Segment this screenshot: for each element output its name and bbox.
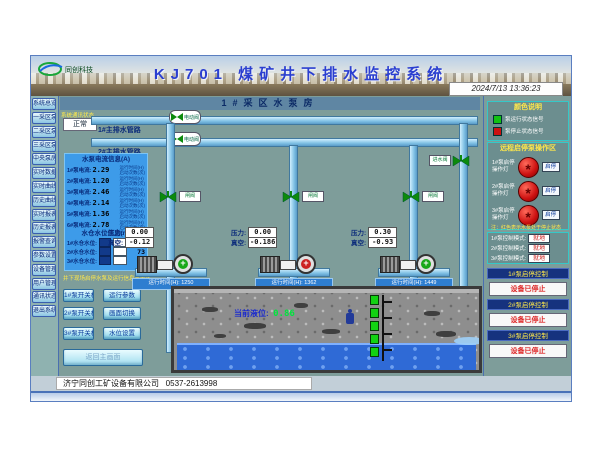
pump3-status-lamp[interactable]: * bbox=[518, 205, 539, 226]
motor-valve-1-label: 电动阀 bbox=[184, 114, 199, 121]
mode-box: 1#泵控制模式:就地 2#泵控制模式:就地 3#泵控制模式:就地 bbox=[487, 232, 569, 264]
pump1-control-header: 1#泵启停控制 bbox=[487, 268, 569, 279]
inlet-valve-tag: 进水阀 bbox=[429, 155, 451, 166]
sidebar-item-overview[interactable]: 系统总览 bbox=[32, 98, 56, 110]
pump2-readouts: 压力:0.00 真空:-0.186 bbox=[231, 227, 277, 247]
inlet-pipe bbox=[459, 123, 468, 310]
content-area: 系统总览 一采区泵房 二采区泵房 三采区泵房 中央泵房 实时数据 实时曲线 历史… bbox=[31, 96, 571, 376]
pump-current-panel-title: 水泵电流信息(A) bbox=[67, 155, 145, 164]
green-swatch-icon bbox=[493, 115, 502, 124]
motor-valve-2-label: 电动阀 bbox=[184, 136, 199, 143]
current-row: 3#泵电流:2.46运行时间(H)启动次数(次) bbox=[67, 186, 145, 197]
pump2-volute: + bbox=[296, 254, 316, 274]
current-row: 2#泵电流:1.20运行时间(H)启动次数(次) bbox=[67, 175, 145, 186]
remote-control-panel: 颜色说明 泵运行状态信号 泵停止状态信号 远程启停泵操作区 1#泵启停操作灯 *… bbox=[483, 96, 572, 376]
sidebar-item-realtime-curve[interactable]: 实时曲线 bbox=[32, 181, 56, 193]
pump1-status-lamp[interactable]: * bbox=[518, 157, 539, 178]
remote-note: 注：红色表示水泵处于停止状态 bbox=[491, 224, 561, 231]
pump3-switch-button[interactable]: 3#泵开关机 bbox=[63, 327, 94, 340]
bottom-bar: 济宁同创工矿设备有限公司 0537-2613998 bbox=[31, 376, 571, 391]
pump3-gate-valve-icon[interactable] bbox=[402, 190, 420, 208]
run-params-button[interactable]: 运行参数 bbox=[103, 289, 141, 302]
pump3-motor bbox=[380, 256, 400, 273]
sidebar-item-history-report[interactable]: 历史报表 bbox=[32, 222, 56, 234]
pump2-impeller-stopped: + bbox=[301, 259, 311, 269]
legend-running-row: 泵运行状态信号 bbox=[488, 113, 568, 125]
sidebar-item-area1[interactable]: 一采区泵房 bbox=[32, 112, 56, 124]
footer-strip bbox=[31, 391, 571, 401]
pump1-coupling bbox=[157, 260, 173, 270]
pump3-assembly[interactable]: + bbox=[378, 252, 448, 278]
sidebar-item-params[interactable]: 参数设置 bbox=[32, 250, 56, 262]
company-info: 济宁同创工矿设备有限公司 0537-2613998 bbox=[56, 377, 312, 390]
pump3-remote-button[interactable]: 启停 bbox=[542, 210, 560, 220]
inlet-valve-icon[interactable] bbox=[452, 154, 470, 172]
current-row: 1#泵电流:2.29运行时间(H)启动次数(次) bbox=[67, 164, 145, 175]
level-row: 2#水仓水位:73 bbox=[67, 247, 145, 256]
screen-switch-button[interactable]: 画面切换 bbox=[103, 307, 141, 320]
pump2-status-lamp[interactable]: * bbox=[518, 181, 539, 202]
screenshot-page: 同创科技 KJ701 煤矿井下排水监控系统 2024/7/13 13:36:23… bbox=[0, 0, 600, 450]
pump3-control-header: 3#泵启停控制 bbox=[487, 330, 569, 341]
pump2-control-header: 2#泵启停控制 bbox=[487, 299, 569, 310]
sidebar-item-area2[interactable]: 二采区泵房 bbox=[32, 126, 56, 138]
sidebar-item-history-curve[interactable]: 历史曲线 bbox=[32, 195, 56, 207]
pump1-readouts: 压力:0.00 真空:-0.12 bbox=[108, 227, 154, 247]
sidebar-item-comm[interactable]: 通讯状态 bbox=[32, 291, 56, 303]
main-pipe-2 bbox=[91, 138, 478, 147]
water-sump-tank: 当前液位: 0.86 bbox=[171, 286, 482, 373]
inflow-splash bbox=[454, 337, 482, 345]
main-pipe-1 bbox=[91, 116, 478, 125]
sump-water bbox=[177, 343, 476, 371]
sidebar-nav: 系统总览 一采区泵房 二采区泵房 三采区泵房 中央泵房 实时数据 实时曲线 历史… bbox=[31, 96, 59, 376]
pump2-switch-button[interactable]: 2#泵开关机 bbox=[63, 307, 94, 320]
sidebar-item-area3[interactable]: 三采区泵房 bbox=[32, 140, 56, 152]
remote-box-title: 远程启停泵操作区 bbox=[488, 143, 568, 154]
level-input-box bbox=[113, 247, 127, 256]
pump3-valve-tag: 闸阀 bbox=[422, 191, 444, 202]
sidebar-item-devices[interactable]: 设备管理 bbox=[32, 264, 56, 276]
current-row: 5#泵电流:1.36运行时间(H)启动次数(次) bbox=[67, 208, 145, 219]
pump3-control-button[interactable]: 设备已停止 bbox=[489, 344, 567, 358]
legend-title: 颜色说明 bbox=[488, 102, 568, 113]
color-legend-box: 颜色说明 泵运行状态信号 泵停止状态信号 bbox=[487, 101, 569, 141]
main-pipe-1-label: 1#主排水管路 bbox=[98, 125, 141, 135]
level-input-box bbox=[113, 256, 127, 265]
level-setting-button[interactable]: 水位设置 bbox=[103, 327, 141, 340]
back-to-main-button[interactable]: 返回主画面 bbox=[63, 349, 143, 366]
pump1-gate-valve-icon[interactable] bbox=[159, 190, 177, 208]
pump1-control-button[interactable]: 设备已停止 bbox=[489, 282, 567, 296]
sidebar-item-central[interactable]: 中央泵房 bbox=[32, 153, 56, 165]
level-row: 3#水仓水位:26 bbox=[67, 256, 145, 265]
remote-start-stop-box: 远程启停泵操作区 1#泵启停操作灯 * 启停 2#泵启停操作灯 * 启停 3#泵… bbox=[487, 142, 569, 230]
pump1-assembly[interactable]: + bbox=[135, 252, 205, 278]
pump2-gate-valve-icon[interactable] bbox=[282, 190, 300, 208]
pump3-coupling bbox=[400, 260, 416, 270]
page-title: KJ701 煤矿井下排水监控系统 bbox=[31, 63, 571, 84]
header-photo-banner: 同创科技 KJ701 煤矿井下排水监控系统 2024/7/13 13:36:23 bbox=[31, 56, 571, 96]
sidebar-item-users[interactable]: 用户管理 bbox=[32, 278, 56, 290]
level-state-box bbox=[99, 247, 111, 256]
pump1-remote-button[interactable]: 启停 bbox=[542, 162, 560, 172]
pump2-control-button[interactable]: 设备已停止 bbox=[489, 313, 567, 327]
pump1-impeller-running: + bbox=[178, 259, 188, 269]
pump2-mode-row: 2#泵控制模式:就地 bbox=[488, 243, 568, 253]
pump2-vacuum-value: -0.186 bbox=[248, 237, 277, 248]
pump1-volute: + bbox=[173, 254, 193, 274]
sidebar-item-realtime-data[interactable]: 实时数据 bbox=[32, 167, 56, 179]
pump2-valve-tag: 闸阀 bbox=[302, 191, 324, 202]
pump2-mode-value: 就地 bbox=[528, 244, 550, 253]
pump1-mode-value: 就地 bbox=[528, 234, 550, 243]
pump1-switch-button[interactable]: 1#泵开关机 bbox=[63, 289, 94, 302]
pump2-remote-button[interactable]: 启停 bbox=[542, 186, 560, 196]
sidebar-item-exit[interactable]: 退出系统 bbox=[32, 305, 56, 317]
red-swatch-icon bbox=[493, 127, 502, 136]
pump2-coupling bbox=[280, 260, 296, 270]
pump2-motor bbox=[260, 256, 280, 273]
pump1-valve-tag: 闸阀 bbox=[179, 191, 201, 202]
valve-icon bbox=[171, 113, 183, 121]
pump1-motor bbox=[137, 256, 157, 273]
pump3-readouts: 压力:0.30 真空:-0.93 bbox=[351, 227, 397, 247]
motor-valve-1[interactable]: 电动阀 bbox=[169, 110, 201, 124]
datetime-display: 2024/7/13 13:36:23 bbox=[449, 82, 563, 96]
sidebar-item-realtime-report[interactable]: 实时报表 bbox=[32, 209, 56, 221]
sump-level-readout: 当前液位: 0.86 bbox=[234, 303, 295, 321]
level-state-box bbox=[99, 256, 111, 265]
pump3-volute: + bbox=[416, 254, 436, 274]
pump3-impeller-running: + bbox=[421, 259, 431, 269]
company-phone: 0537-2613998 bbox=[166, 379, 218, 388]
legend-stopped-row: 泵停止状态信号 bbox=[488, 125, 568, 137]
scada-window: 同创科技 KJ701 煤矿井下排水监控系统 2024/7/13 13:36:23… bbox=[30, 55, 572, 402]
remote-row-pump1: 1#泵启停操作灯 * 启停 bbox=[492, 157, 566, 177]
station-subtitle: 1#采区水泵房 bbox=[60, 97, 480, 110]
pump1-vacuum-value: -0.12 bbox=[125, 237, 154, 248]
remote-row-pump3: 3#泵启停操作灯 * 启停 bbox=[492, 205, 566, 225]
pump3-mode-value: 就地 bbox=[528, 254, 550, 263]
mimic-diagram: 1#采区水泵房 系统通讯状态 正常 1#主排水管路 2#主排水管路 电动阀 电动… bbox=[58, 96, 483, 376]
sidebar-item-alarm[interactable]: 报警查询 bbox=[32, 236, 56, 248]
pump2-assembly[interactable]: + bbox=[258, 252, 328, 278]
remote-row-pump2: 2#泵启停操作灯 * 启停 bbox=[492, 181, 566, 201]
current-row: 4#泵电流:2.14运行时间(H)启动次数(次) bbox=[67, 197, 145, 208]
pump3-vacuum-value: -0.93 bbox=[368, 237, 397, 248]
pump1-mode-row: 1#泵控制模式:就地 bbox=[488, 233, 568, 243]
pump3-mode-row: 3#泵控制模式:就地 bbox=[488, 253, 568, 263]
level-gauge bbox=[370, 295, 379, 360]
